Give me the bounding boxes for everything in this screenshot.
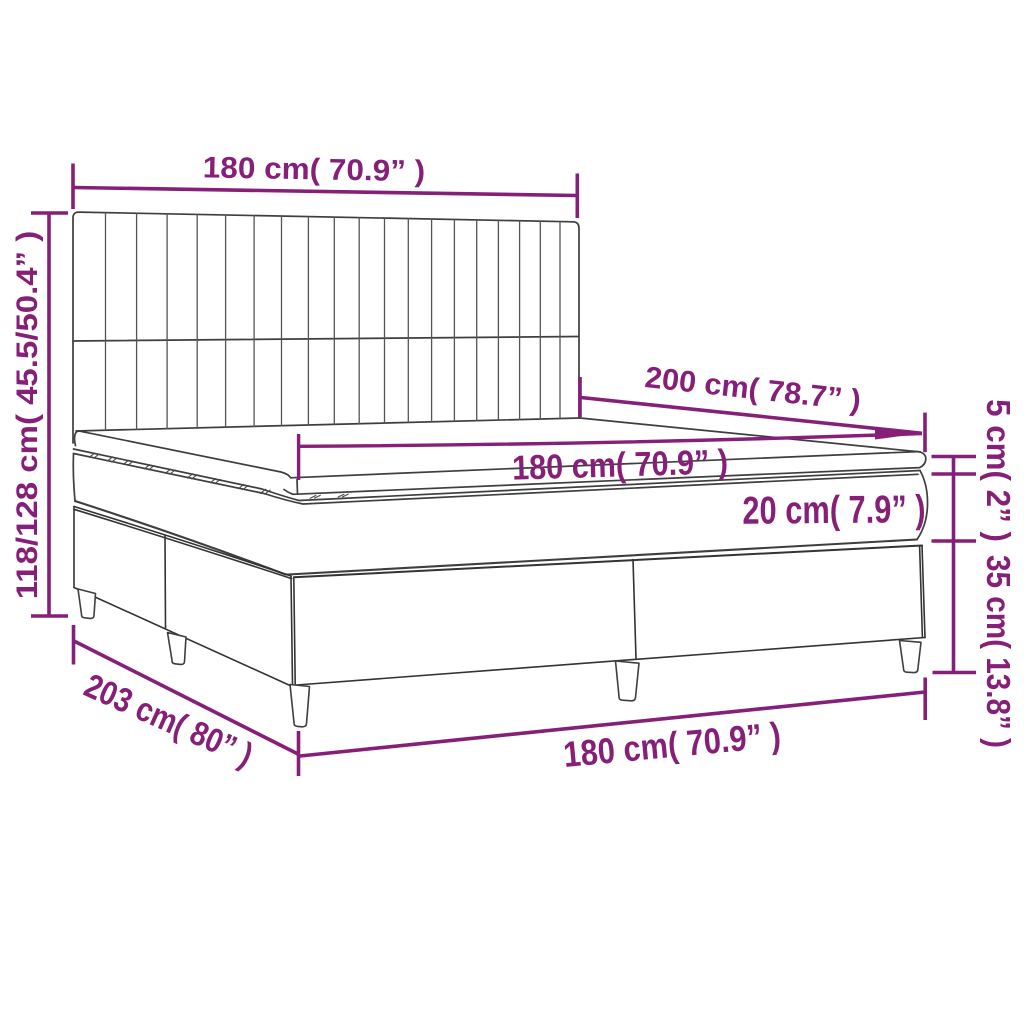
svg-text:180 cm( 70.9” ): 180 cm( 70.9” ) xyxy=(512,441,729,487)
svg-text:5 cm( 2” ): 5 cm( 2” ) xyxy=(980,399,1017,542)
svg-text:20 cm( 7.9” ): 20 cm( 7.9” ) xyxy=(742,488,926,533)
svg-text:35 cm( 13.8” ): 35 cm( 13.8” ) xyxy=(980,555,1017,748)
svg-text:180 cm( 70.9” ): 180 cm( 70.9” ) xyxy=(203,150,426,188)
svg-text:118/128 cm( 45.5/50.4” ): 118/128 cm( 45.5/50.4” ) xyxy=(9,231,43,600)
